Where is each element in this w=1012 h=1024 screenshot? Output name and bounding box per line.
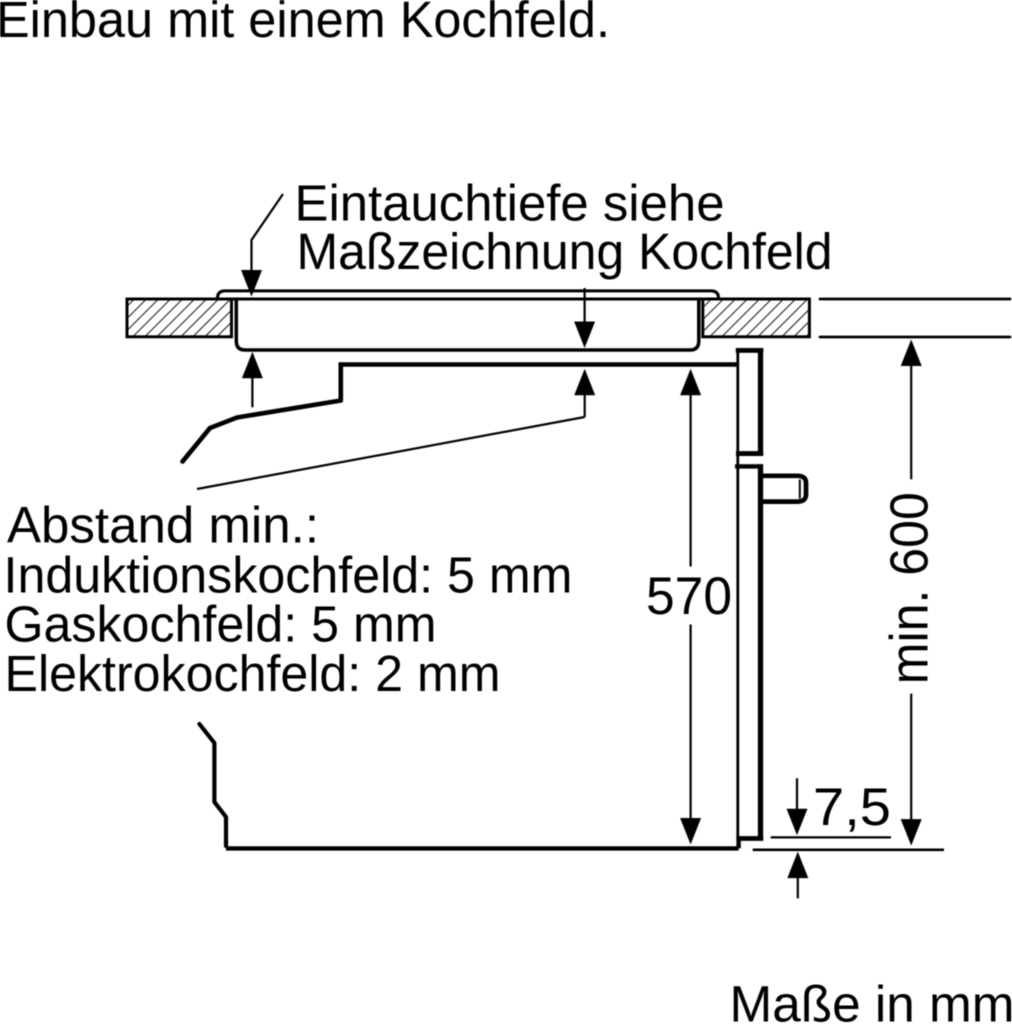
svg-text:min. 600: min. 600 xyxy=(880,492,940,684)
svg-text:Gaskochfeld: 5 mm: Gaskochfeld: 5 mm xyxy=(5,595,437,652)
svg-text:Maße in mm: Maße in mm xyxy=(730,976,1012,1024)
svg-text:Einbau mit einem Kochfeld.: Einbau mit einem Kochfeld. xyxy=(0,0,610,48)
svg-text:7,5: 7,5 xyxy=(813,778,891,837)
svg-text:Abstand min.:: Abstand min.: xyxy=(7,497,319,554)
svg-text:570: 570 xyxy=(646,567,732,626)
svg-text:Elektrokochfeld: 2 mm: Elektrokochfeld: 2 mm xyxy=(5,645,501,702)
svg-text:Maßzeichnung Kochfeld: Maßzeichnung Kochfeld xyxy=(297,223,833,280)
